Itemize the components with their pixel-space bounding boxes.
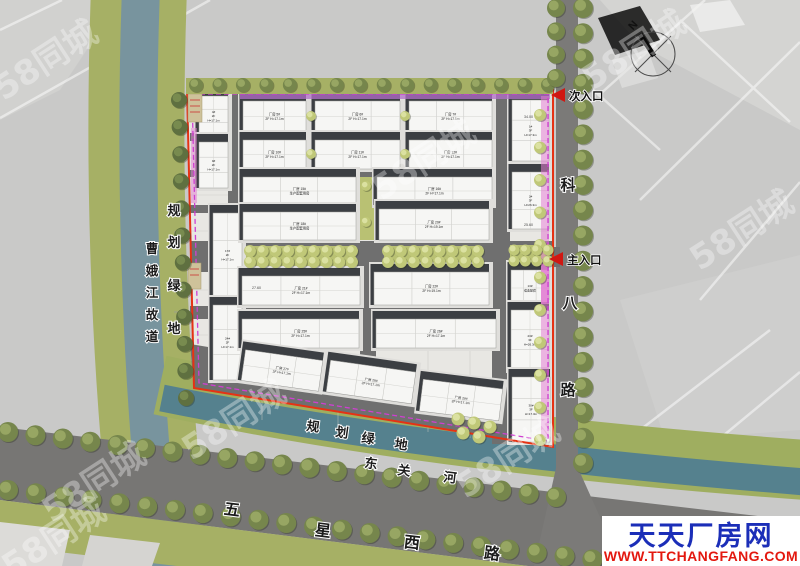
bottom-river-label: 东 [364, 455, 379, 471]
building-label: 2F H=17.1m [425, 191, 443, 195]
building-label: 2F H=17.1m [265, 155, 283, 159]
dimension-label: 25.60 [524, 223, 533, 227]
factory-building: 厂房 18#生产配套用房 [238, 202, 360, 243]
svg-text:道: 道 [146, 329, 159, 344]
building-label: H=17.1m [207, 167, 220, 171]
building-label: H=17.1m [221, 257, 234, 261]
logo-watermark: 天天厂房网 WWW.TTCHANGFANG.COM [602, 516, 800, 566]
factory-building: 厂房 10#2F H=17.1m [238, 130, 310, 172]
svg-text:关: 关 [397, 462, 412, 478]
factory-building: 厂房 15#生产配套用房 [238, 167, 360, 208]
dimension-label: 27.60 [252, 286, 261, 290]
factory-building: 厂房 20#2F H=19.1m [374, 199, 493, 243]
building-label: H=17.3m [525, 412, 538, 416]
svg-text:路: 路 [560, 381, 576, 399]
building-label: 2F H=17.1m [427, 334, 445, 338]
bottom-road-label: 五 [223, 501, 241, 520]
building-label: 2F H=17.1m [348, 155, 366, 159]
svg-text:划: 划 [167, 235, 180, 250]
building-label: 2F H=17.1m [265, 117, 283, 121]
building-label: H=17.3m [524, 133, 537, 137]
right-road-label: 科 [560, 176, 575, 194]
building-label: 生产配套用房 [290, 190, 310, 195]
svg-text:星: 星 [314, 521, 332, 541]
building-label: H=26.3m [524, 203, 537, 207]
svg-text:划: 划 [335, 424, 350, 441]
left-green-label: 规 [167, 203, 180, 218]
svg-text:八: 八 [561, 295, 578, 312]
main-entrance-label: 主入口 [567, 253, 602, 267]
site-plan-image: 4#2FH=17.1m9#2FH=17.1m17#2FH=17.1m24#2FH… [0, 0, 800, 566]
logo-title: 天天厂房网 [629, 521, 774, 551]
svg-text:故: 故 [146, 307, 159, 322]
svg-text:地: 地 [394, 436, 409, 453]
svg-text:地: 地 [167, 321, 180, 336]
building-label: H=17.1m [207, 118, 220, 122]
building-label: 宿舍配套 [524, 287, 536, 292]
building-label: 2F H=19.1m [422, 289, 440, 293]
left-river-label: 曹 [146, 241, 159, 256]
factory-building: 厂房 26#2F H=17.1m [371, 309, 500, 351]
building-label: 生产配套用房 [290, 225, 310, 230]
building-label: 2F H=17.1m [348, 117, 366, 121]
building-label: 2F H=17.1m [291, 334, 309, 338]
bottom-green-label: 规 [306, 418, 321, 435]
factory-building: 9#2FH=17.1m [194, 132, 232, 191]
annotation-block [188, 94, 202, 122]
building-label: 2F H=17.1m [292, 291, 310, 295]
logo-url: WWW.TTCHANGFANG.COM [604, 548, 798, 564]
factory-building: 厂房 22#2F H=19.1m [369, 262, 493, 308]
building-label: H=17.1m [221, 345, 234, 349]
svg-text:江: 江 [146, 285, 159, 300]
svg-text:娥: 娥 [145, 263, 159, 278]
building-label: 2F H=19.1m [425, 225, 443, 229]
svg-text:西: 西 [403, 533, 421, 553]
svg-text:绿: 绿 [167, 278, 181, 293]
dimension-label: 34.00 [524, 115, 533, 119]
